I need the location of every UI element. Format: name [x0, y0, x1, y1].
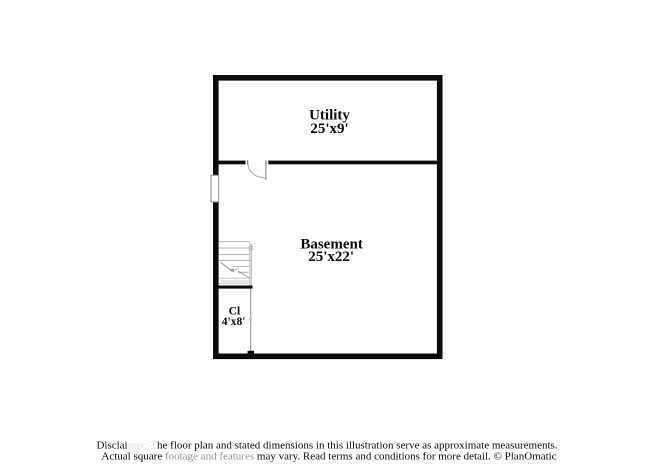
svg-text:25'x22': 25'x22' [308, 249, 354, 265]
svg-text:4'x8': 4'x8' [222, 316, 246, 328]
svg-text:Disclaimer: The floor plan and: Disclaimer: The floor plan and stated di… [96, 439, 557, 451]
svg-text:Actual square footage and feat: Actual square footage and features may v… [101, 451, 556, 463]
svg-text:25'x9': 25'x9' [310, 121, 348, 137]
